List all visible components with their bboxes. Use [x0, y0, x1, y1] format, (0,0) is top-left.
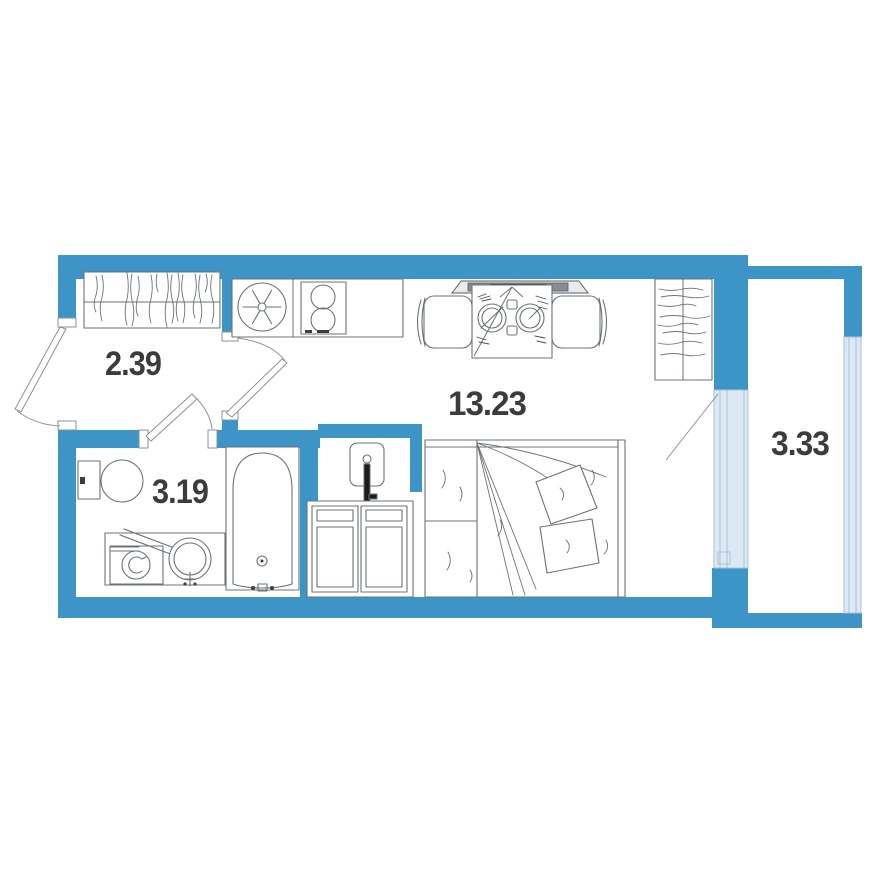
wall-balcony-bottom: [748, 613, 862, 628]
plate-left: [478, 304, 506, 332]
entrance-jamb-top: [58, 318, 76, 327]
wall-right-lower-block: [712, 568, 748, 628]
hallway-wardrobe: [84, 272, 220, 328]
hallway-area-label: 2.39: [105, 345, 161, 383]
wall-left-lower: [58, 430, 76, 618]
bathroom-door-swing-arc: [196, 398, 212, 429]
wall-bathroom-top-left: [58, 430, 139, 448]
bathroom-door: [146, 394, 212, 441]
bathroom-door-jamb-right: [208, 430, 217, 448]
room-door: [226, 338, 287, 417]
balcony-door-glazing: [714, 390, 748, 568]
bathtub-icon: [226, 447, 299, 591]
water-heater-icon: [350, 443, 384, 501]
wall-bottom: [58, 597, 748, 618]
dining-chair-right: [552, 296, 607, 348]
floor-plan: 2.39 3.19 13.23 3.33: [0, 0, 880, 880]
toilet-icon: [78, 460, 143, 502]
balcony-area-label: 3.33: [771, 425, 829, 463]
double-bed-icon: [425, 440, 625, 597]
room-door-leaf: [226, 359, 287, 417]
bathroom-door-jamb-left: [139, 430, 148, 448]
entrance-door-leaf: [15, 327, 66, 412]
entrance-door-swing-arc: [17, 411, 60, 426]
wall-left-upper: [58, 255, 76, 327]
washing-machine-icon: [110, 546, 163, 584]
bathroom-area-label: 3.19: [152, 473, 208, 511]
living-area-label: 13.23: [448, 385, 526, 423]
cabinet-icon: [307, 501, 413, 597]
wall-balcony-right: [844, 266, 862, 337]
wall-right-main: [714, 255, 748, 390]
door-jambs: [58, 318, 238, 448]
dining-chair-left: [418, 296, 473, 348]
kitchen-counter: [232, 279, 403, 337]
entrance-jamb-bottom: [58, 421, 76, 430]
entrance-door: [15, 327, 66, 426]
plate-right: [516, 304, 544, 332]
bathroom-counter: [105, 529, 225, 586]
bathroom-door-leaf: [146, 394, 197, 441]
balcony-door-swing-line: [666, 394, 718, 460]
floor-plan-svg: 2.39 3.19 13.23 3.33: [0, 0, 880, 880]
wall-niche-right: [410, 438, 422, 492]
wardrobe: [655, 279, 712, 380]
balcony-window-glazing: [844, 337, 861, 613]
dining-table: [472, 285, 552, 358]
wall-niche-top: [318, 424, 422, 438]
room-door-swing-arc: [238, 338, 285, 361]
